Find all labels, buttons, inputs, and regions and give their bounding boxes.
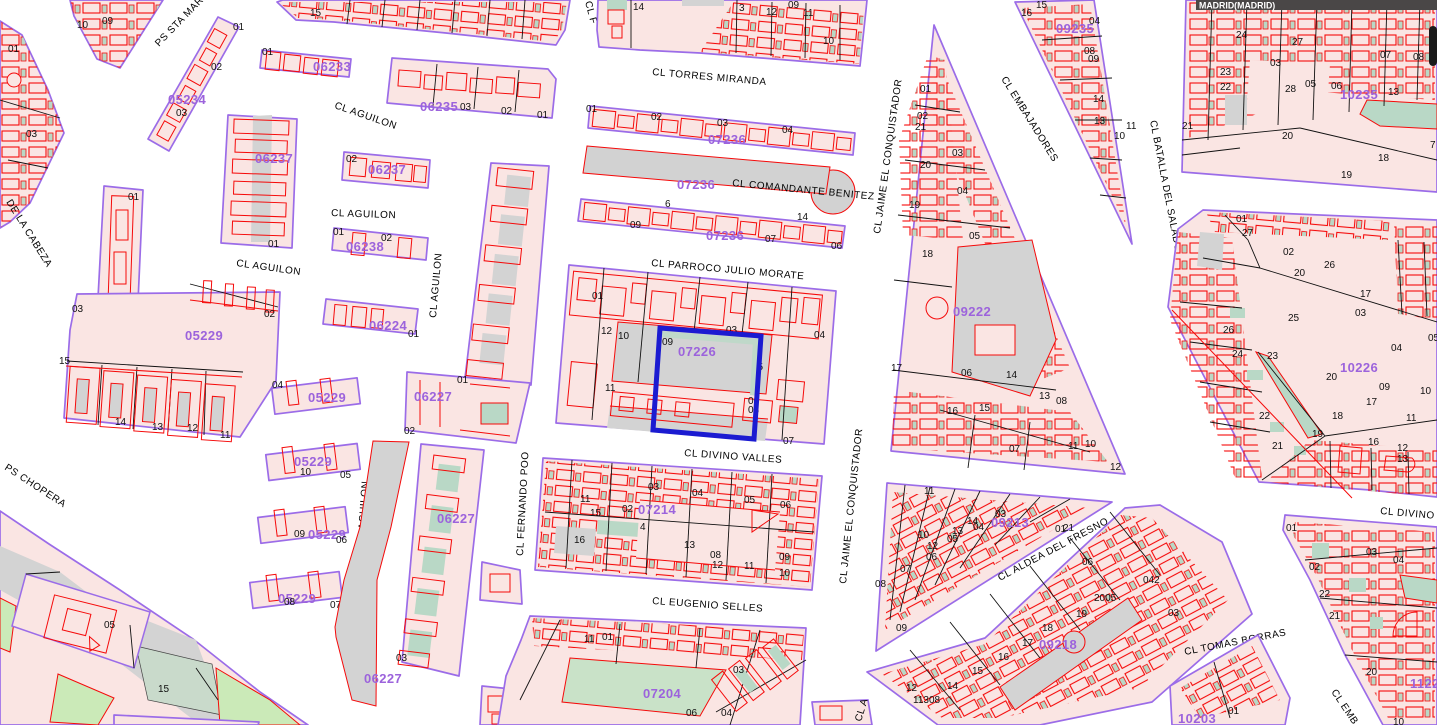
svg-text:01: 01 <box>8 44 20 55</box>
svg-text:01: 01 <box>268 239 280 250</box>
svg-text:03: 03 <box>72 304 84 315</box>
svg-text:13: 13 <box>1397 454 1409 465</box>
svg-text:09: 09 <box>1379 382 1391 393</box>
svg-text:01: 01 <box>1286 523 1298 534</box>
svg-text:02: 02 <box>501 106 513 117</box>
svg-text:03: 03 <box>460 102 472 113</box>
svg-text:05229: 05229 <box>308 390 346 405</box>
svg-text:06: 06 <box>686 708 698 719</box>
svg-text:04: 04 <box>957 186 969 197</box>
svg-text:05: 05 <box>744 495 756 506</box>
svg-text:05229: 05229 <box>185 328 223 343</box>
svg-text:03: 03 <box>1270 58 1282 69</box>
svg-text:15: 15 <box>972 666 984 677</box>
svg-text:09: 09 <box>630 220 642 231</box>
svg-text:12: 12 <box>1397 443 1409 454</box>
svg-text:06: 06 <box>926 552 938 563</box>
svg-text:7: 7 <box>1430 140 1436 151</box>
svg-text:10226: 10226 <box>1340 360 1378 375</box>
svg-text:18: 18 <box>1332 411 1344 422</box>
svg-text:03: 03 <box>1355 308 1367 319</box>
svg-text:08: 08 <box>1056 396 1068 407</box>
svg-text:06: 06 <box>780 500 792 511</box>
svg-text:09: 09 <box>896 623 908 634</box>
svg-text:09: 09 <box>662 337 674 348</box>
svg-text:23: 23 <box>1220 67 1232 78</box>
svg-text:03: 03 <box>995 509 1007 520</box>
svg-text:15: 15 <box>59 356 71 367</box>
svg-text:16: 16 <box>574 535 586 546</box>
svg-text:11: 11 <box>584 634 595 645</box>
svg-text:07: 07 <box>765 234 777 245</box>
svg-text:19: 19 <box>909 200 921 211</box>
svg-text:10: 10 <box>918 530 930 541</box>
svg-text:03: 03 <box>952 148 964 159</box>
svg-text:12: 12 <box>927 541 939 552</box>
svg-text:19: 19 <box>1076 609 1088 620</box>
svg-text:20: 20 <box>920 160 932 171</box>
svg-text:06: 06 <box>831 241 843 252</box>
svg-text:07: 07 <box>900 564 912 575</box>
svg-text:01: 01 <box>262 47 274 58</box>
svg-text:24: 24 <box>1236 30 1248 41</box>
svg-text:12: 12 <box>187 423 199 434</box>
svg-text:07: 07 <box>783 436 795 447</box>
svg-text:10235: 10235 <box>1340 87 1378 102</box>
svg-text:12: 12 <box>1110 462 1122 473</box>
svg-text:20: 20 <box>1282 131 1294 142</box>
svg-text:14: 14 <box>633 2 645 13</box>
svg-text:15: 15 <box>979 403 991 414</box>
svg-text:16: 16 <box>1021 8 1033 19</box>
svg-text:16: 16 <box>998 652 1010 663</box>
svg-text:01: 01 <box>128 192 140 203</box>
svg-text:10: 10 <box>300 467 312 478</box>
svg-text:06235: 06235 <box>420 99 458 114</box>
svg-text:22: 22 <box>1220 82 1232 93</box>
svg-text:20: 20 <box>1294 268 1306 279</box>
svg-text:10: 10 <box>1420 386 1432 397</box>
svg-text:10: 10 <box>779 568 791 579</box>
svg-text:12: 12 <box>601 326 613 337</box>
svg-text:04: 04 <box>721 708 733 719</box>
svg-text:08: 08 <box>875 579 887 590</box>
svg-text:16: 16 <box>1368 437 1380 448</box>
svg-text:03: 03 <box>733 665 745 676</box>
svg-text:02: 02 <box>264 309 276 320</box>
svg-text:10: 10 <box>618 331 630 342</box>
svg-text:14: 14 <box>1006 370 1018 381</box>
svg-text:01: 01 <box>333 227 345 238</box>
svg-text:10203: 10203 <box>1178 711 1216 725</box>
svg-text:26: 26 <box>1324 260 1336 271</box>
svg-text:02: 02 <box>404 426 416 437</box>
svg-text:11: 11 <box>580 494 591 505</box>
svg-text:13: 13 <box>1388 87 1400 98</box>
svg-text:09218: 09218 <box>1039 637 1077 652</box>
svg-text:05: 05 <box>1305 79 1317 90</box>
svg-text:04: 04 <box>272 380 284 391</box>
svg-text:03: 03 <box>648 482 660 493</box>
svg-text:28: 28 <box>1285 84 1297 95</box>
svg-text:10: 10 <box>823 36 835 47</box>
svg-text:27: 27 <box>1292 37 1304 48</box>
svg-text:07226: 07226 <box>678 344 716 359</box>
svg-text:01: 01 <box>1236 214 1248 225</box>
svg-text:05: 05 <box>947 534 959 545</box>
svg-text:11: 11 <box>744 561 755 572</box>
svg-text:13: 13 <box>152 422 164 433</box>
svg-text:15: 15 <box>158 684 170 695</box>
svg-text:26: 26 <box>1223 325 1235 336</box>
svg-text:22: 22 <box>1319 589 1331 600</box>
svg-text:04: 04 <box>692 488 704 499</box>
svg-text:02: 02 <box>1309 562 1321 573</box>
svg-text:07236: 07236 <box>708 132 746 147</box>
svg-text:06238: 06238 <box>346 239 384 254</box>
svg-text:04: 04 <box>1391 343 1403 354</box>
svg-text:04: 04 <box>1089 16 1101 27</box>
svg-text:CL AGUILON: CL AGUILON <box>331 208 397 221</box>
svg-text:07214: 07214 <box>638 502 677 517</box>
svg-text:12: 12 <box>766 7 778 18</box>
svg-text:15: 15 <box>590 508 602 519</box>
svg-text:20: 20 <box>1366 667 1378 678</box>
svg-text:02: 02 <box>651 112 663 123</box>
svg-text:01: 01 <box>537 110 549 121</box>
svg-text:11: 11 <box>605 383 616 394</box>
svg-text:01: 01 <box>1228 706 1240 717</box>
svg-text:1122: 1122 <box>1410 676 1437 691</box>
svg-text:24: 24 <box>1232 349 1244 360</box>
svg-text:21: 21 <box>915 122 927 133</box>
svg-text:21: 21 <box>1182 121 1194 132</box>
svg-text:01: 01 <box>586 104 598 115</box>
svg-text:10: 10 <box>1114 131 1126 142</box>
svg-text:27: 27 <box>1242 228 1254 239</box>
svg-text:06227: 06227 <box>364 671 402 686</box>
svg-text:01: 01 <box>602 632 614 643</box>
svg-text:06224: 06224 <box>369 318 408 333</box>
svg-text:05: 05 <box>969 231 981 242</box>
svg-text:14: 14 <box>797 212 809 223</box>
svg-text:06: 06 <box>961 368 973 379</box>
svg-text:2005: 2005 <box>1094 593 1117 604</box>
svg-text:07204: 07204 <box>643 686 682 701</box>
svg-text:02: 02 <box>917 111 929 122</box>
svg-text:03: 03 <box>1168 608 1180 619</box>
svg-text:15: 15 <box>310 8 322 19</box>
svg-text:06: 06 <box>1082 557 1094 568</box>
svg-text:16: 16 <box>947 406 959 417</box>
svg-text:02: 02 <box>381 233 393 244</box>
svg-text:13: 13 <box>684 540 696 551</box>
svg-text:15: 15 <box>1036 0 1048 11</box>
svg-text:14: 14 <box>115 417 127 428</box>
svg-text:23: 23 <box>1267 351 1279 362</box>
svg-text:08: 08 <box>1413 52 1425 63</box>
svg-text:19: 19 <box>1312 429 1324 440</box>
svg-text:17: 17 <box>1022 638 1034 649</box>
svg-text:17: 17 <box>1366 397 1378 408</box>
svg-text:02: 02 <box>1283 247 1295 258</box>
svg-text:07236: 07236 <box>706 228 744 243</box>
svg-text:09: 09 <box>788 0 800 11</box>
svg-text:07: 07 <box>1009 444 1021 455</box>
svg-text:11: 11 <box>924 486 935 497</box>
svg-text:05: 05 <box>1428 333 1437 344</box>
svg-text:11: 11 <box>220 430 231 441</box>
svg-text:05: 05 <box>104 620 116 631</box>
svg-text:01: 01 <box>233 22 245 33</box>
svg-text:MADRID(MADRID): MADRID(MADRID) <box>1199 1 1275 11</box>
svg-text:4: 4 <box>640 522 646 533</box>
svg-text:11: 11 <box>803 8 814 19</box>
svg-text:02: 02 <box>346 154 358 165</box>
svg-text:18: 18 <box>922 249 934 260</box>
svg-text:06237: 06237 <box>255 151 293 166</box>
svg-text:21: 21 <box>1329 611 1341 622</box>
svg-text:11: 11 <box>1068 441 1079 452</box>
svg-text:05234: 05234 <box>168 92 207 107</box>
svg-text:03: 03 <box>1366 547 1378 558</box>
svg-text:05: 05 <box>340 470 352 481</box>
svg-text:12: 12 <box>712 560 724 571</box>
svg-text:3: 3 <box>739 3 745 14</box>
svg-text:10: 10 <box>1085 439 1097 450</box>
svg-text:17: 17 <box>1360 289 1372 300</box>
svg-text:03: 03 <box>396 653 408 664</box>
svg-text:13: 13 <box>1039 391 1051 402</box>
svg-text:06: 06 <box>1331 81 1343 92</box>
svg-text:03: 03 <box>26 129 38 140</box>
svg-text:03: 03 <box>176 108 188 119</box>
svg-text:11308: 11308 <box>913 695 941 706</box>
svg-text:20: 20 <box>1326 372 1338 383</box>
svg-text:09: 09 <box>294 529 306 540</box>
svg-text:09: 09 <box>1088 54 1100 65</box>
svg-text:04: 04 <box>814 330 826 341</box>
svg-text:01: 01 <box>457 375 469 386</box>
svg-text:01: 01 <box>920 84 932 95</box>
svg-text:09: 09 <box>102 16 114 27</box>
svg-text:14: 14 <box>1093 94 1105 105</box>
svg-text:25: 25 <box>1288 313 1300 324</box>
svg-text:09: 09 <box>779 552 791 563</box>
svg-text:07: 07 <box>1380 50 1392 61</box>
svg-text:02: 02 <box>211 62 223 73</box>
svg-text:02: 02 <box>622 504 634 515</box>
svg-text:01: 01 <box>592 291 604 302</box>
svg-text:06: 06 <box>336 535 348 546</box>
svg-text:13: 13 <box>1094 116 1106 127</box>
svg-text:18: 18 <box>1378 153 1390 164</box>
svg-text:22: 22 <box>1259 411 1271 422</box>
svg-text:11: 11 <box>1406 413 1417 424</box>
svg-text:12: 12 <box>906 683 918 694</box>
svg-text:17: 17 <box>891 363 903 374</box>
svg-text:06237: 06237 <box>368 162 406 177</box>
svg-text:06233: 06233 <box>313 59 351 74</box>
svg-text:11: 11 <box>1126 121 1137 132</box>
svg-text:19: 19 <box>1341 170 1353 181</box>
svg-text:07236: 07236 <box>677 177 715 192</box>
svg-text:10: 10 <box>1393 717 1405 725</box>
svg-text:04: 04 <box>1393 555 1405 566</box>
svg-text:03: 03 <box>717 118 729 129</box>
svg-text:06227: 06227 <box>414 389 452 404</box>
svg-text:04: 04 <box>782 125 794 136</box>
svg-text:10: 10 <box>77 20 89 31</box>
svg-text:04: 04 <box>973 522 985 533</box>
svg-text:6: 6 <box>665 199 671 210</box>
svg-text:08: 08 <box>284 597 296 608</box>
svg-text:01: 01 <box>408 329 420 340</box>
svg-text:21: 21 <box>1272 441 1284 452</box>
svg-text:14: 14 <box>947 681 959 692</box>
svg-text:09222: 09222 <box>953 304 991 319</box>
svg-text:18: 18 <box>1042 623 1054 634</box>
svg-text:042: 042 <box>1143 575 1160 586</box>
svg-text:06227: 06227 <box>437 511 475 526</box>
